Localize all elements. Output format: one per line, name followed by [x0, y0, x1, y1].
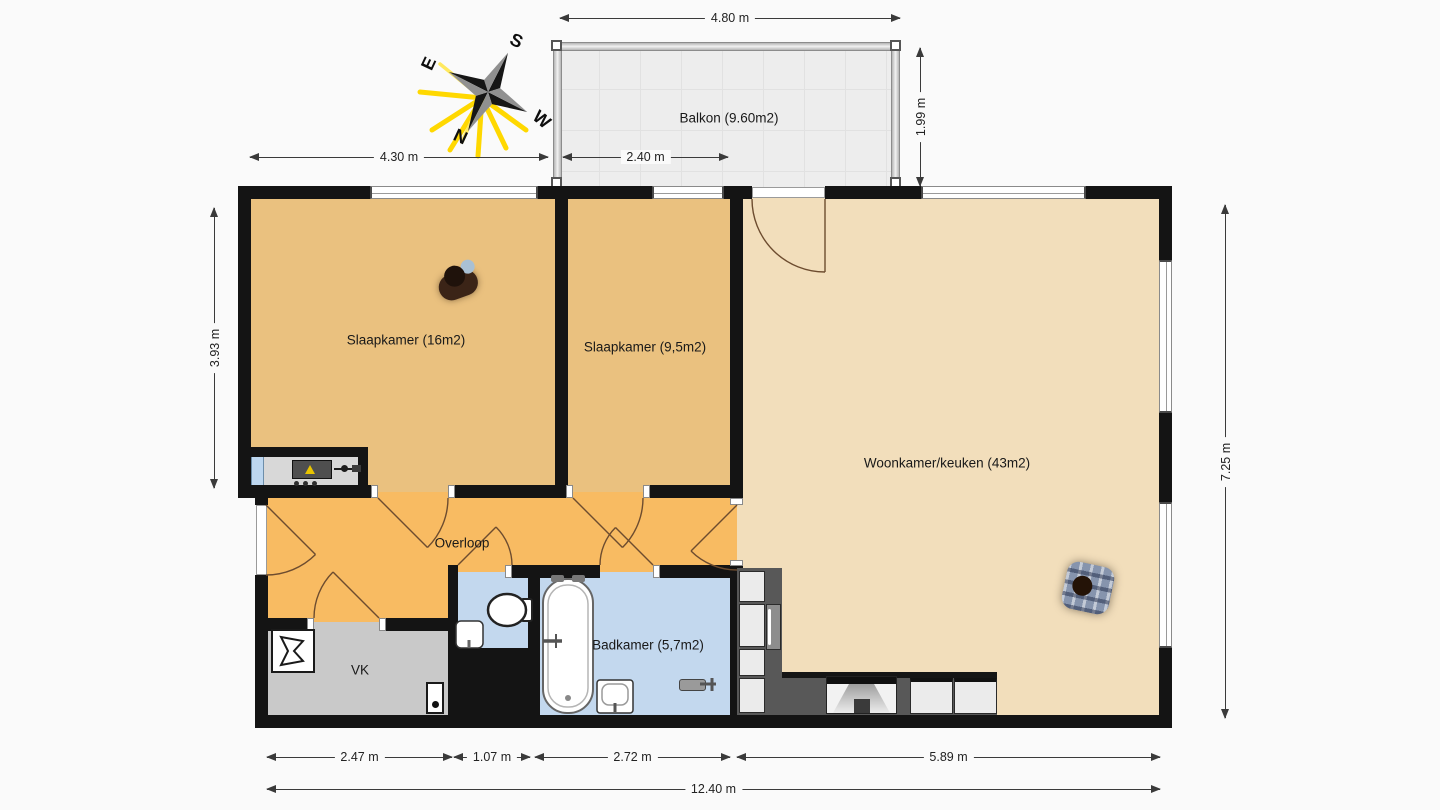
- wall-top: [825, 186, 921, 199]
- kitchen-cabinet: [739, 649, 765, 676]
- balcony-post: [890, 40, 901, 51]
- boiler-icon: [292, 460, 332, 479]
- wall-bedrooms-hall: [238, 485, 378, 498]
- kitchen-cabinet: [739, 604, 765, 647]
- room-label-overloop: Overloop: [435, 536, 490, 551]
- wall-niche-top: [245, 447, 368, 457]
- wall-top: [538, 186, 652, 199]
- compass-west: W: [529, 106, 555, 132]
- window-living-right-1: [1159, 260, 1172, 413]
- room-label-woonkamer: Woonkamer/keuken (43m2): [864, 456, 1030, 471]
- kitchen-cabinet: [954, 678, 997, 714]
- kitchen-cabinet: [910, 678, 953, 714]
- floor-overloop: [261, 492, 452, 622]
- balcony-post: [551, 40, 562, 51]
- door-jamb: [448, 485, 455, 498]
- balcony-door-gap: [752, 187, 825, 198]
- dim-balcony-width: 4.80 m: [560, 18, 900, 19]
- wall-left-upper: [238, 186, 251, 498]
- floorplan: S E N W Balkon (9.60m2) Slaapkamer (16m2…: [0, 0, 1440, 810]
- wall-left-lower: [255, 575, 268, 728]
- door-jamb: [505, 565, 512, 578]
- wall-bed1-bed2: [555, 199, 568, 498]
- front-door-gap: [256, 505, 267, 575]
- wall-right: [1159, 413, 1172, 502]
- boiler-valve: [341, 465, 348, 472]
- towel-rail-icon: [679, 679, 706, 691]
- room-label-badkamer: Badkamer (5,7m2): [592, 638, 704, 653]
- person-livingroom: [1055, 555, 1121, 621]
- wall-hall-bath: [653, 565, 730, 578]
- door-jamb: [643, 485, 650, 498]
- door-jamb: [653, 565, 660, 578]
- fridge-icon: [766, 604, 781, 650]
- compass-star: [429, 33, 547, 151]
- door-jamb: [730, 498, 743, 505]
- room-label-slaapkamer-2: Slaapkamer (9,5m2): [584, 340, 706, 355]
- wall-bedrooms-hall: [643, 485, 743, 498]
- boiler-pipes: [294, 481, 299, 486]
- kitchen-cabinet: [739, 678, 765, 713]
- wall-right: [1159, 648, 1172, 728]
- wall-right: [1159, 186, 1172, 260]
- balcony-railing-left: [553, 42, 562, 187]
- wall-toilet-bath: [528, 565, 540, 648]
- door-jamb: [566, 485, 573, 498]
- wall-bedrooms-hall: [448, 485, 573, 498]
- compass-south: S: [507, 30, 526, 52]
- niche-window-glass: [251, 455, 264, 487]
- compass-rays: [420, 64, 526, 156]
- room-label-balkon: Balkon (9.60m2): [679, 111, 778, 126]
- wall-vk-right: [448, 618, 458, 728]
- wall-left-lower: [255, 498, 268, 505]
- stove-icon: [826, 676, 897, 714]
- boiler-pipes: [312, 481, 317, 486]
- window-bed1: [370, 186, 538, 199]
- floor-toilet: [455, 572, 535, 652]
- compass-north: N: [450, 125, 470, 149]
- balcony-railing-top: [553, 42, 900, 51]
- wall-top: [238, 186, 370, 199]
- compass-east: E: [417, 54, 440, 73]
- dim-top-left: 4.30 m: [250, 157, 548, 158]
- door-jamb: [371, 485, 378, 498]
- balcony-railing-right: [891, 42, 900, 187]
- wall-hall-bath: [512, 565, 600, 578]
- dim-right-height: 7.25 m: [1225, 205, 1226, 718]
- door-jamb: [379, 618, 386, 631]
- wall-bed2-living: [730, 199, 743, 498]
- floor-overloop-2: [448, 492, 737, 572]
- vk-boiler-unit: [426, 682, 444, 714]
- dim-balcony-inner: 2.40 m: [563, 157, 728, 158]
- dim-bottom-seg4: 5.89 m: [737, 757, 1160, 758]
- kitchen-cabinet: [739, 571, 765, 602]
- boiler-pipes: [303, 481, 308, 486]
- room-label-vk: VK: [351, 663, 369, 678]
- compass-rose: S E N W: [410, 30, 570, 170]
- boiler-valve: [352, 465, 361, 472]
- wall-top: [724, 186, 752, 199]
- dim-bottom-seg2: 1.07 m: [454, 757, 530, 758]
- door-jamb: [730, 560, 743, 566]
- dim-balcony-depth: 1.99 m: [920, 48, 921, 186]
- wall-vk-top: [379, 618, 456, 631]
- dim-left-height: 3.93 m: [214, 208, 215, 488]
- dim-bottom-total: 12.40 m: [267, 789, 1160, 790]
- window-bed2: [652, 186, 724, 199]
- window-living-top: [921, 186, 1086, 199]
- vk-appliance-icon: [271, 629, 315, 673]
- room-label-slaapkamer-1: Slaapkamer (16m2): [347, 333, 466, 348]
- window-living-right-2: [1159, 502, 1172, 648]
- dim-bottom-seg1: 2.47 m: [267, 757, 452, 758]
- wall-bottom: [255, 715, 1172, 728]
- dim-bottom-seg3: 2.72 m: [535, 757, 730, 758]
